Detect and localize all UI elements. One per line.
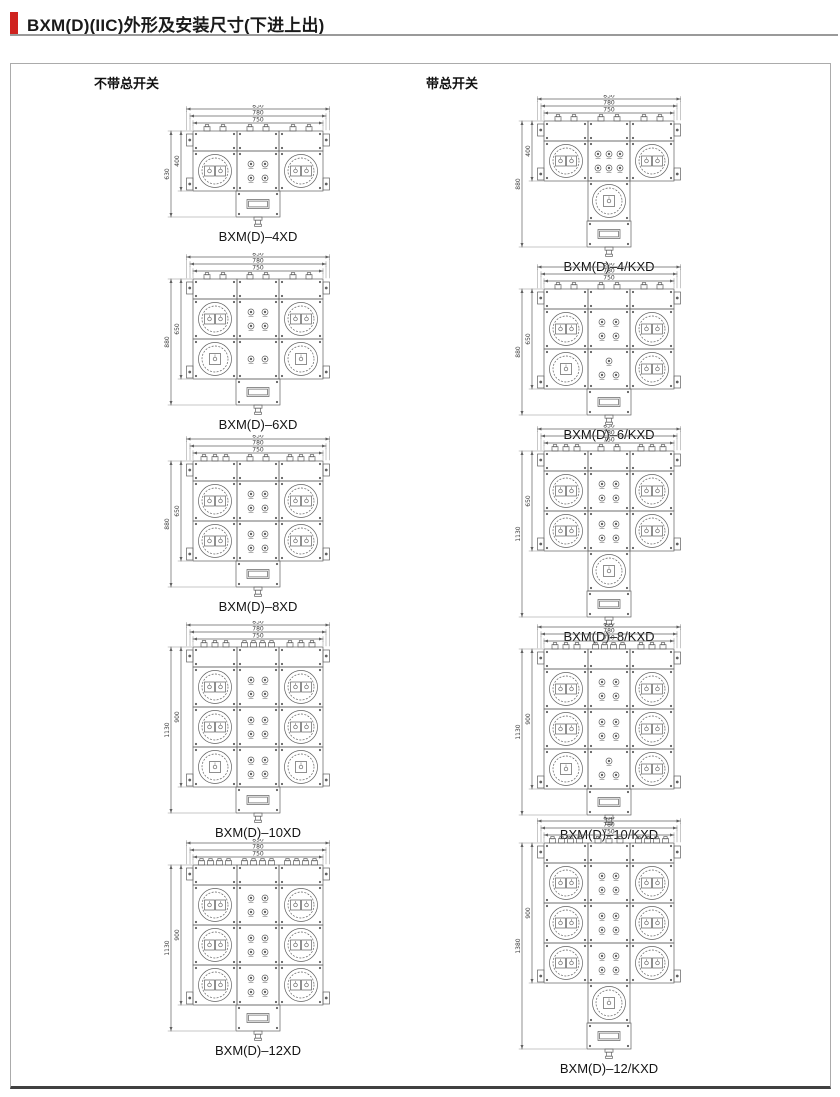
svg-text:750: 750: [252, 446, 264, 453]
svg-text:750: 750: [603, 634, 615, 641]
figure-bxmd-10xd: 8307807501130900 BXM(D)–10XD: [159, 621, 335, 840]
svg-text:1130: 1130: [515, 526, 522, 541]
svg-text:780: 780: [603, 267, 615, 274]
column-header-with-main-switch: 带总开关: [426, 73, 478, 92]
figure-caption: BXM(D)–10XD: [170, 825, 346, 840]
figure-bxmd-6kxd: 830780750880650 BXM(D)–6/KXD: [510, 263, 686, 442]
title-accent-bar: [10, 12, 18, 34]
dimension-drawing: 8307807501130900: [159, 621, 335, 823]
figure-caption: BXM(D)–8XD: [170, 599, 346, 614]
svg-text:750: 750: [603, 106, 615, 113]
svg-text:1130: 1130: [164, 722, 171, 737]
svg-text:780: 780: [603, 99, 615, 106]
svg-text:880: 880: [164, 518, 171, 530]
dimension-drawing: 8307807501130900: [159, 839, 335, 1041]
figure-bxmd-4xd: 830780750630400 BXM(D)–4XD: [159, 105, 335, 244]
figure-caption: BXM(D)–12XD: [170, 1043, 346, 1058]
svg-text:780: 780: [252, 439, 264, 446]
title-divider: [10, 34, 838, 36]
content-panel: 不带总开关 带总开关 830780750630400 BXM(D)–4XD 83…: [10, 63, 831, 1089]
figure-bxmd-8xd: 830780750880650 BXM(D)–8XD: [159, 435, 335, 614]
page-title: BXM(D)(IIC)外形及安装尺寸(下进上出): [27, 11, 325, 36]
dimension-drawing: 830780750880650: [159, 435, 335, 597]
svg-text:780: 780: [603, 627, 615, 634]
svg-text:630: 630: [164, 168, 171, 180]
figure-bxmd-12xd: 8307807501130900 BXM(D)–12XD: [159, 839, 335, 1058]
svg-text:780: 780: [252, 843, 264, 850]
dimension-drawing: 8307807501130650: [510, 425, 686, 627]
svg-text:750: 750: [252, 632, 264, 639]
svg-text:900: 900: [174, 711, 181, 723]
svg-text:650: 650: [525, 333, 532, 345]
svg-text:750: 750: [252, 850, 264, 857]
svg-text:880: 880: [515, 346, 522, 358]
svg-text:780: 780: [603, 821, 615, 828]
svg-text:780: 780: [252, 257, 264, 264]
svg-text:650: 650: [174, 505, 181, 517]
figure-bxmd-10kxd: 8307807501130900 BXM(D)–10/KXD: [510, 623, 686, 842]
svg-text:750: 750: [603, 436, 615, 443]
figure-bxmd-4kxd: 830780750880400 BXM(D)–4/KXD: [510, 95, 686, 274]
figure-bxmd-6xd: 830780750880650 BXM(D)–6XD: [159, 253, 335, 432]
dimension-drawing: 8307807501380900: [510, 817, 686, 1059]
svg-text:780: 780: [252, 625, 264, 632]
dimension-drawing: 830780750630400: [159, 105, 335, 227]
svg-text:900: 900: [174, 929, 181, 941]
figure-caption: BXM(D)–12/KXD: [521, 1061, 697, 1076]
svg-text:650: 650: [525, 495, 532, 507]
svg-text:750: 750: [603, 828, 615, 835]
figure-caption: BXM(D)–4XD: [170, 229, 346, 244]
svg-text:750: 750: [252, 116, 264, 123]
svg-text:650: 650: [174, 323, 181, 335]
figure-bxmd-12kxd: 8307807501380900 BXM(D)–12/KXD: [510, 817, 686, 1076]
svg-text:780: 780: [603, 429, 615, 436]
column-header-without-main-switch: 不带总开关: [94, 73, 159, 92]
svg-text:750: 750: [252, 264, 264, 271]
svg-text:880: 880: [164, 336, 171, 348]
figure-bxmd-8kxd: 8307807501130650 BXM(D)–8/KXD: [510, 425, 686, 644]
dimension-drawing: 830780750880650: [510, 263, 686, 425]
dimension-drawing: 830780750880650: [159, 253, 335, 415]
svg-text:900: 900: [525, 713, 532, 725]
svg-text:900: 900: [525, 907, 532, 919]
dimension-drawing: 830780750880400: [510, 95, 686, 257]
svg-text:750: 750: [603, 274, 615, 281]
svg-text:1380: 1380: [515, 938, 522, 953]
svg-text:880: 880: [515, 178, 522, 190]
dimension-drawing: 8307807501130900: [510, 623, 686, 825]
svg-text:400: 400: [525, 145, 532, 157]
catalog-page: BXM(D)(IIC)外形及安装尺寸(下进上出) 不带总开关 带总开关 8307…: [0, 0, 840, 1097]
svg-text:1130: 1130: [515, 724, 522, 739]
figure-caption: BXM(D)–6XD: [170, 417, 346, 432]
svg-text:400: 400: [174, 155, 181, 167]
svg-text:780: 780: [252, 109, 264, 116]
svg-text:1130: 1130: [164, 940, 171, 955]
